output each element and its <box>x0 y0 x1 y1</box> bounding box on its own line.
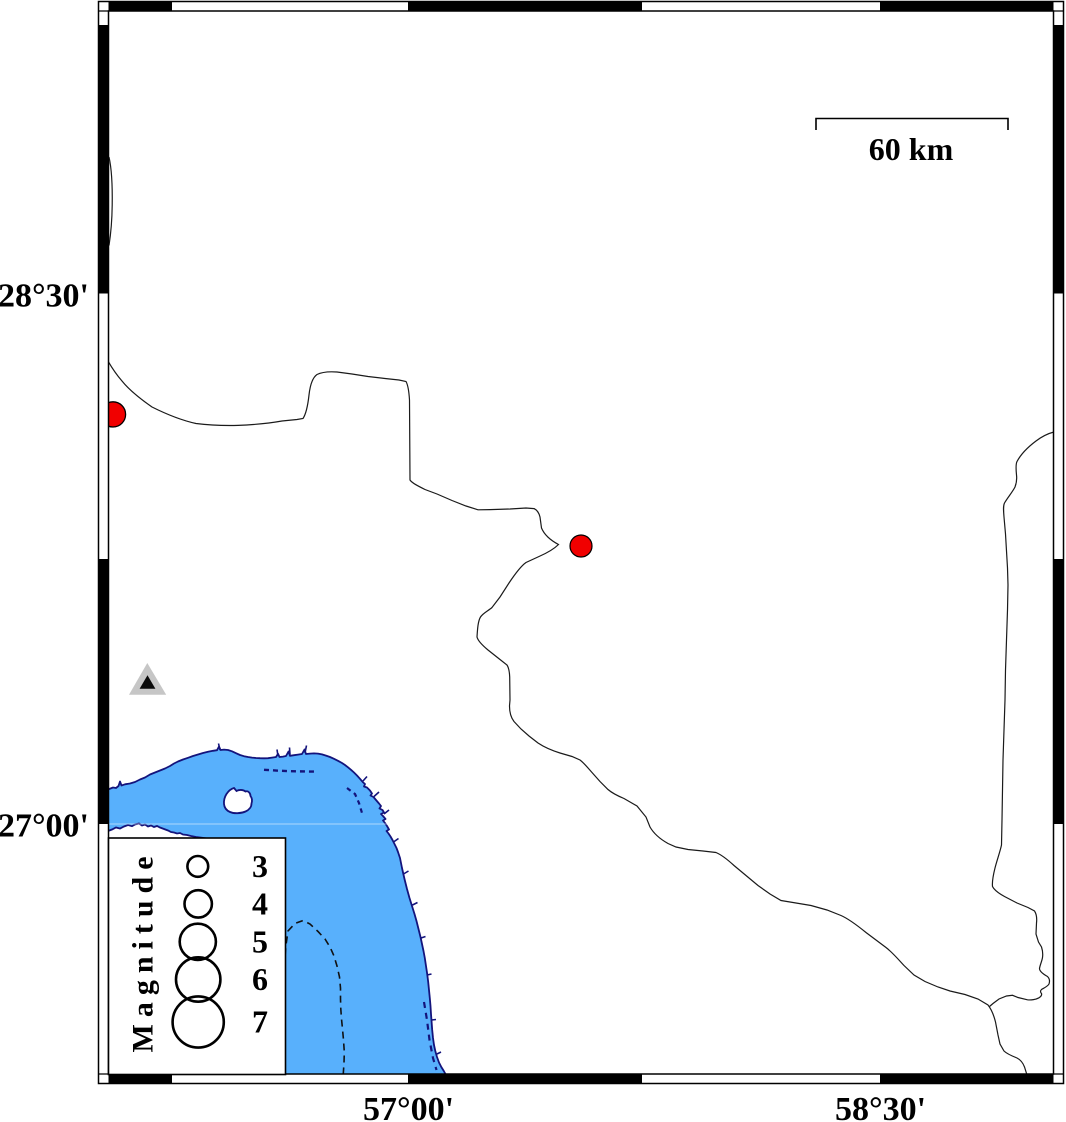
svg-text:6: 6 <box>252 961 268 997</box>
svg-text:27°00': 27°00' <box>0 808 89 845</box>
svg-text:58°30': 58°30' <box>835 1091 926 1122</box>
svg-text:60 km: 60 km <box>869 131 954 167</box>
svg-text:4: 4 <box>252 886 268 922</box>
svg-text:57°00': 57°00' <box>363 1091 454 1122</box>
svg-text:5: 5 <box>252 924 268 960</box>
svg-text:Magnitude: Magnitude <box>127 849 160 1052</box>
svg-text:7: 7 <box>252 1004 268 1040</box>
svg-text:3: 3 <box>252 848 268 884</box>
svg-text:28°30': 28°30' <box>0 278 89 315</box>
